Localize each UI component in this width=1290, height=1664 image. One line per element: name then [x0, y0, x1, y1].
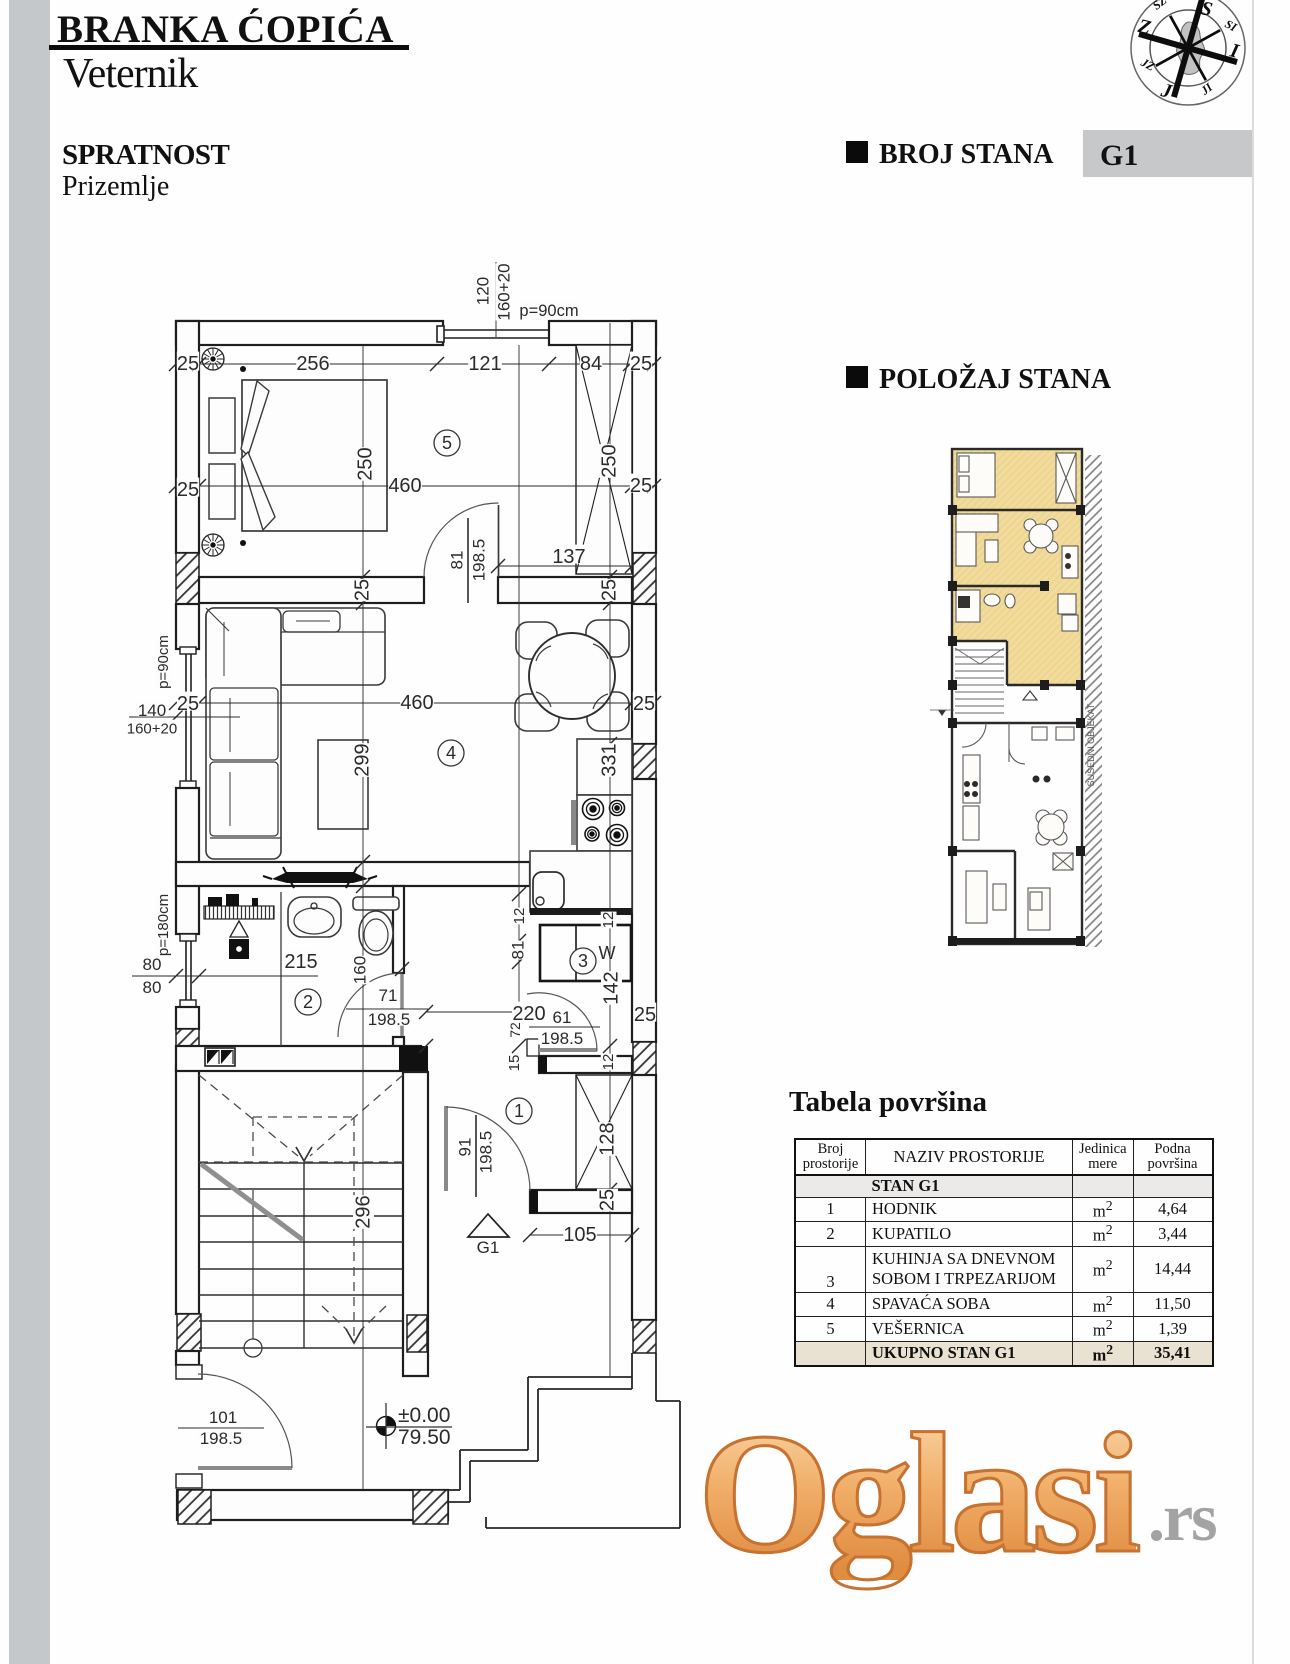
svg-text:SUSEDNI OBJEKAT: SUSEDNI OBJEKAT — [1086, 703, 1096, 786]
svg-text:4: 4 — [446, 743, 456, 763]
svg-text:12: 12 — [511, 908, 528, 925]
svg-text:25: 25 — [177, 353, 199, 375]
svg-text:198.5: 198.5 — [200, 1429, 243, 1448]
svg-text:84: 84 — [580, 353, 602, 375]
svg-text:460: 460 — [400, 692, 433, 714]
svg-text:5: 5 — [442, 433, 452, 453]
svg-text:91: 91 — [456, 1138, 475, 1157]
svg-text:160: 160 — [351, 956, 370, 984]
svg-text:137: 137 — [552, 546, 585, 568]
svg-text:p=90cm: p=90cm — [519, 302, 578, 320]
svg-text:25: 25 — [177, 479, 199, 501]
svg-text:81: 81 — [509, 941, 528, 960]
svg-text:61: 61 — [553, 1008, 572, 1027]
svg-text:460: 460 — [388, 475, 421, 497]
svg-text:198.5: 198.5 — [368, 1010, 411, 1029]
svg-text:25: 25 — [596, 1189, 618, 1211]
svg-text:220: 220 — [512, 1003, 545, 1025]
svg-text:142: 142 — [600, 971, 622, 1004]
svg-text:256: 256 — [296, 353, 329, 375]
svg-text:296: 296 — [352, 1195, 374, 1228]
svg-text:299: 299 — [351, 743, 373, 776]
svg-text:71: 71 — [379, 986, 398, 1005]
svg-text:25: 25 — [630, 353, 652, 375]
svg-text:2: 2 — [303, 992, 313, 1012]
svg-text:79.50: 79.50 — [398, 1426, 451, 1449]
svg-text:250: 250 — [598, 444, 620, 477]
svg-text:25: 25 — [177, 693, 199, 715]
svg-text:W: W — [599, 943, 616, 963]
svg-text:15: 15 — [506, 1055, 523, 1072]
svg-text:81: 81 — [448, 551, 467, 570]
svg-text:101: 101 — [209, 1408, 237, 1427]
svg-text:140: 140 — [138, 701, 166, 720]
svg-text:198.5: 198.5 — [477, 1131, 496, 1174]
svg-text:±0.00: ±0.00 — [398, 1404, 450, 1427]
svg-text:80: 80 — [143, 955, 162, 974]
svg-text:331: 331 — [598, 743, 620, 776]
svg-text:25: 25 — [598, 579, 620, 601]
svg-text:25: 25 — [351, 579, 373, 601]
svg-text:198.5: 198.5 — [541, 1029, 584, 1048]
svg-text:105: 105 — [563, 1224, 596, 1246]
svg-text:p=180cm: p=180cm — [155, 894, 172, 956]
svg-text:25: 25 — [630, 475, 652, 497]
svg-text:1: 1 — [514, 1101, 524, 1121]
svg-text:160+20: 160+20 — [127, 721, 177, 738]
svg-text:215: 215 — [284, 951, 317, 973]
svg-text:120: 120 — [474, 277, 493, 305]
svg-text:G1: G1 — [477, 1238, 500, 1257]
svg-text:80: 80 — [143, 978, 162, 997]
svg-text:198.5: 198.5 — [470, 539, 489, 582]
svg-text:72: 72 — [507, 1022, 523, 1038]
svg-text:p=90cm: p=90cm — [155, 635, 172, 689]
svg-text:3: 3 — [578, 951, 588, 971]
svg-text:12: 12 — [600, 912, 617, 929]
svg-text:25: 25 — [633, 693, 655, 715]
svg-text:12: 12 — [600, 1054, 617, 1071]
svg-text:128: 128 — [596, 1122, 618, 1155]
svg-text:121: 121 — [468, 353, 501, 375]
svg-text:250: 250 — [354, 447, 376, 480]
svg-text:25: 25 — [634, 1004, 656, 1026]
svg-text:160+20: 160+20 — [495, 263, 514, 320]
